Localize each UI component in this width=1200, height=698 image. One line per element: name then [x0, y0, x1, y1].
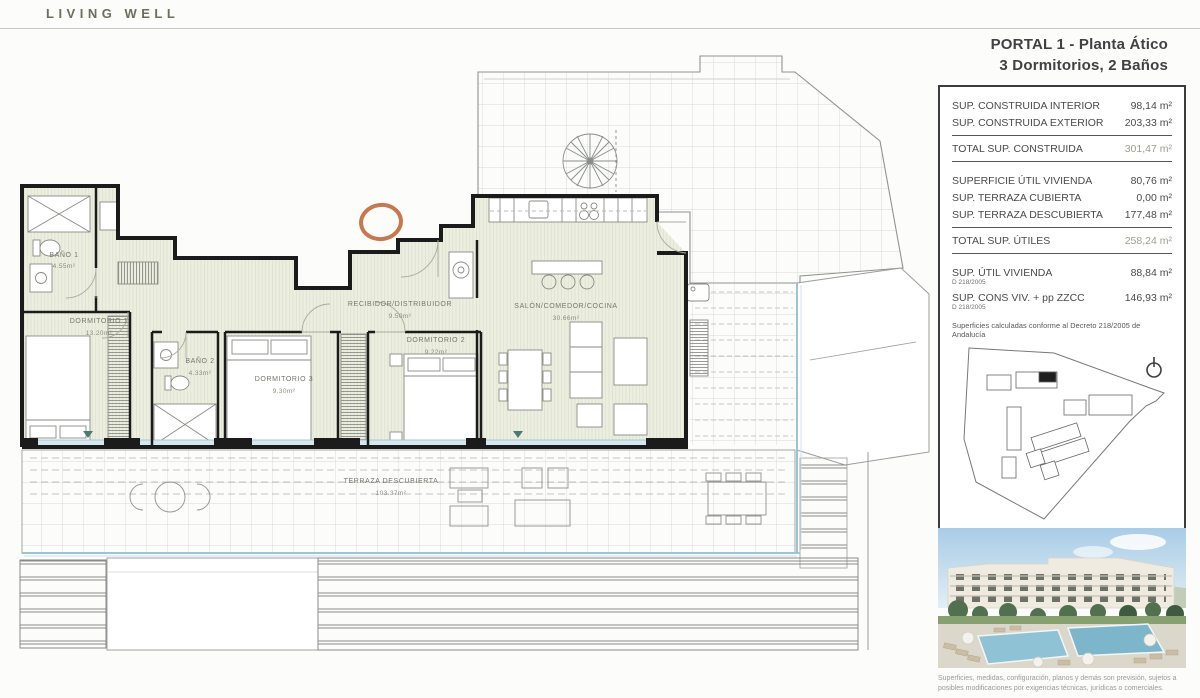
site-map	[952, 345, 1176, 525]
page-title: PORTAL 1 - Planta Ático 3 Dormitorios, 2…	[938, 34, 1186, 76]
divider	[952, 253, 1172, 254]
surface-summary-box: SUP. CONSTRUIDA INTERIOR 98,14 m² SUP. C…	[938, 85, 1186, 537]
room-label: BAÑO 2	[185, 356, 214, 365]
north-icon	[1147, 357, 1161, 377]
highlighted-building	[1039, 372, 1056, 382]
outdoor-kitchen	[687, 284, 709, 376]
info-panel: PORTAL 1 - Planta Ático 3 Dormitorios, 2…	[938, 34, 1186, 537]
lower-deck-bands	[20, 558, 858, 650]
summary-row: SUP. TERRAZA CUBIERTA 0,00 m²	[952, 189, 1172, 206]
room-label: SALÓN/COMEDOR/COCINA	[514, 301, 617, 310]
decreto-group: SUP. ÚTIL VIVIENDA 88,84 m² D 218/2005 S…	[952, 264, 1172, 339]
divider	[952, 135, 1172, 136]
room-area: 30.66m²	[553, 315, 580, 322]
plot-boundary	[797, 268, 929, 465]
legal-disclaimer: Superficies, medidas, configuración, pla…	[938, 674, 1190, 694]
room-label: RECIBIDOR/DISTRIBUIDOR	[348, 301, 452, 308]
summary-total-row: TOTAL SUP. ÚTILES 258,24 m²	[952, 232, 1172, 249]
room-area: 9.22m²	[425, 349, 448, 356]
summary-total-row: TOTAL SUP. CONSTRUIDA 301,47 m²	[952, 140, 1172, 157]
room-area: 103.37m²	[376, 490, 407, 497]
summary-row: SUPERFICIE ÚTIL VIVIENDA 80,76 m²	[952, 172, 1172, 189]
room-label: DORMITORIO 2	[407, 337, 465, 344]
room-label: DORMITORIO 1	[70, 318, 128, 325]
room-area: 13.20m²	[86, 330, 113, 337]
room-label: BAÑO 1	[49, 250, 78, 259]
decreto-ref: D 218/2005	[952, 279, 1172, 286]
divider	[952, 227, 1172, 228]
room-area: 4.55m²	[53, 263, 76, 270]
room-area: 4.33m²	[189, 370, 212, 377]
summary-row: SUP. TERRAZA DESCUBIERTA 177,48 m²	[952, 206, 1172, 223]
floorplan-drawing: BAÑO 1 4.55m² DORMITORIO 1 13.20m² BAÑO …	[0, 0, 935, 698]
summary-row: SUP. CONSTRUIDA INTERIOR 98,14 m²	[952, 97, 1172, 114]
room-area: 9.30m²	[273, 388, 296, 395]
title-line-2: 3 Dormitorios, 2 Baños	[938, 55, 1168, 76]
room-area: 9.50m²	[389, 313, 412, 320]
summary-row: SUP. CONSTRUIDA EXTERIOR 203,33 m²	[952, 114, 1172, 131]
divider	[952, 161, 1172, 162]
floorplan-sheet: LIVING WELL	[0, 0, 1200, 698]
building-render-photo	[938, 528, 1186, 668]
utiles-group: SUPERFICIE ÚTIL VIVIENDA 80,76 m² SUP. T…	[952, 172, 1172, 254]
orange-marker	[359, 202, 403, 241]
decreto-ref: D 218/2005	[952, 304, 1172, 311]
room-label: TERRAZA DESCUBIERTA	[344, 478, 439, 485]
decreto-note: Superficies calculadas conforme al Decre…	[952, 321, 1172, 339]
room-label: DORMITORIO 3	[255, 376, 313, 383]
apartment-building	[948, 558, 1174, 608]
title-line-1: PORTAL 1 - Planta Ático	[938, 34, 1168, 55]
